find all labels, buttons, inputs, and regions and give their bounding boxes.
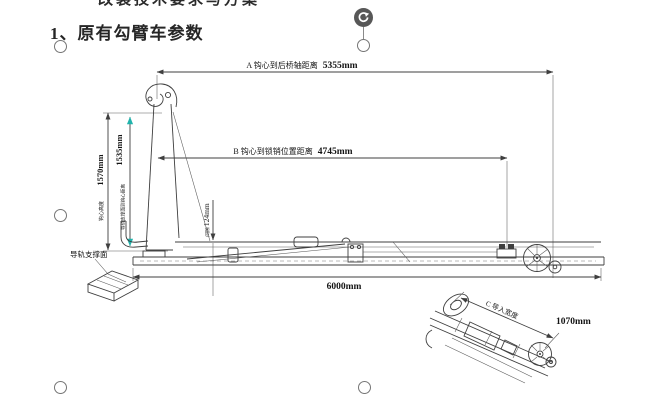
overall-length-value: 6000mm [327,282,362,292]
chassis-side-view [133,237,604,273]
dimension-rail-to-hook: 1535mm 导轨支撑面到钩心距离 [114,117,130,246]
svg-text:A 钩心到后桥轴距离5355mm: A 钩心到后桥轴距离5355mm [246,60,357,71]
gap-value: 124mm [202,203,211,226]
document-canvas: 改装技术要求与方案 1、原有勾臂车参数 A 钩心到后桥轴 [0,0,660,412]
dim-c-label: C 导入宽度 [484,299,519,321]
rail-support-callout: 导轨支撑面 [70,249,138,301]
dimension-a: A 钩心到后桥轴距离5355mm [157,60,553,278]
hook-arm-column [121,84,210,250]
rail-to-hook-value: 1535mm [114,134,124,165]
technical-drawing-image[interactable]: A 钩心到后桥轴距离5355mm B 钩心到锁销位置距离4745mm 1570m… [0,0,660,412]
dim-a-value: 5355mm [323,61,358,71]
hook-height-value: 1570mm [95,154,105,185]
dimension-gap: 间隙124mm [202,200,213,296]
svg-text:间隙124mm: 间隙124mm [202,203,211,237]
hook-height-label: 钩心高度 [98,201,105,221]
dim-a-label: A 钩心到后桥轴距离 [246,60,317,70]
dimension-hook-height: 1570mm 钩心高度 [95,113,168,251]
dim-b-value: 4745mm [318,147,353,157]
svg-text:B 钩心到锁销位置距离4745mm: B 钩心到锁销位置距离4745mm [233,146,352,157]
dimension-overall-length: 6000mm [133,268,601,292]
rail-surface-label: 导轨支撑面 [70,249,108,259]
dim-b-label: B 钩心到锁销位置距离 [233,146,312,156]
dim-c-value: 1070mm [556,317,591,327]
